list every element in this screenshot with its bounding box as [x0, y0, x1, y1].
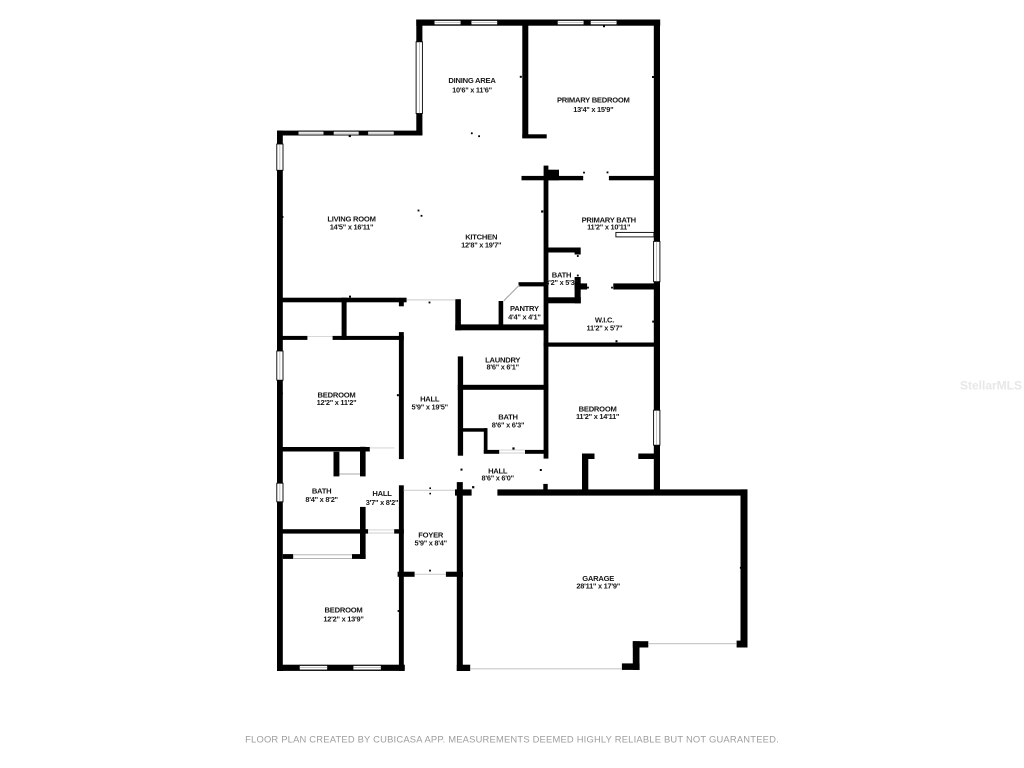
- svg-text:12'2" x 13'9": 12'2" x 13'9": [323, 614, 364, 623]
- svg-text:StellarMLS: StellarMLS: [960, 379, 1022, 393]
- svg-text:8'6" x 6'1": 8'6" x 6'1": [486, 363, 519, 372]
- svg-text:12'8" x 19'7": 12'8" x 19'7": [461, 240, 502, 249]
- svg-text:14'5" x 16'11": 14'5" x 16'11": [330, 223, 374, 232]
- svg-text:FLOOR PLAN CREATED BY CUBICASA: FLOOR PLAN CREATED BY CUBICASA APP. MEAS…: [245, 733, 779, 744]
- svg-text:5'9" x 19'5": 5'9" x 19'5": [412, 403, 449, 412]
- svg-text:BEDROOM: BEDROOM: [325, 606, 363, 615]
- svg-text:4'4" x 4'1": 4'4" x 4'1": [508, 312, 541, 321]
- svg-text:28'11" x 17'9": 28'11" x 17'9": [576, 582, 620, 591]
- svg-text:13'4" x 15'9": 13'4" x 15'9": [573, 105, 614, 114]
- svg-text:DINING AREA: DINING AREA: [448, 76, 496, 85]
- svg-text:12'2" x 11'2": 12'2" x 11'2": [317, 398, 357, 407]
- svg-text:5'9" x 8'4": 5'9" x 8'4": [414, 539, 447, 548]
- svg-text:3'7" x 8'2": 3'7" x 8'2": [366, 498, 399, 507]
- svg-text:3'2" x 5'3": 3'2" x 5'3": [545, 278, 578, 287]
- svg-text:11'2" x 10'11": 11'2" x 10'11": [587, 223, 631, 232]
- svg-text:PRIMARY BEDROOM: PRIMARY BEDROOM: [557, 96, 630, 105]
- svg-text:8'6" x 6'0": 8'6" x 6'0": [481, 474, 514, 483]
- svg-text:11'2" x 5'7": 11'2" x 5'7": [587, 324, 624, 333]
- svg-text:10'6" x 11'6": 10'6" x 11'6": [452, 86, 492, 95]
- svg-text:11'2" x 14'11": 11'2" x 14'11": [576, 412, 620, 421]
- svg-text:8'4" x 8'2": 8'4" x 8'2": [305, 495, 338, 504]
- svg-text:8'6" x 6'3": 8'6" x 6'3": [492, 421, 525, 430]
